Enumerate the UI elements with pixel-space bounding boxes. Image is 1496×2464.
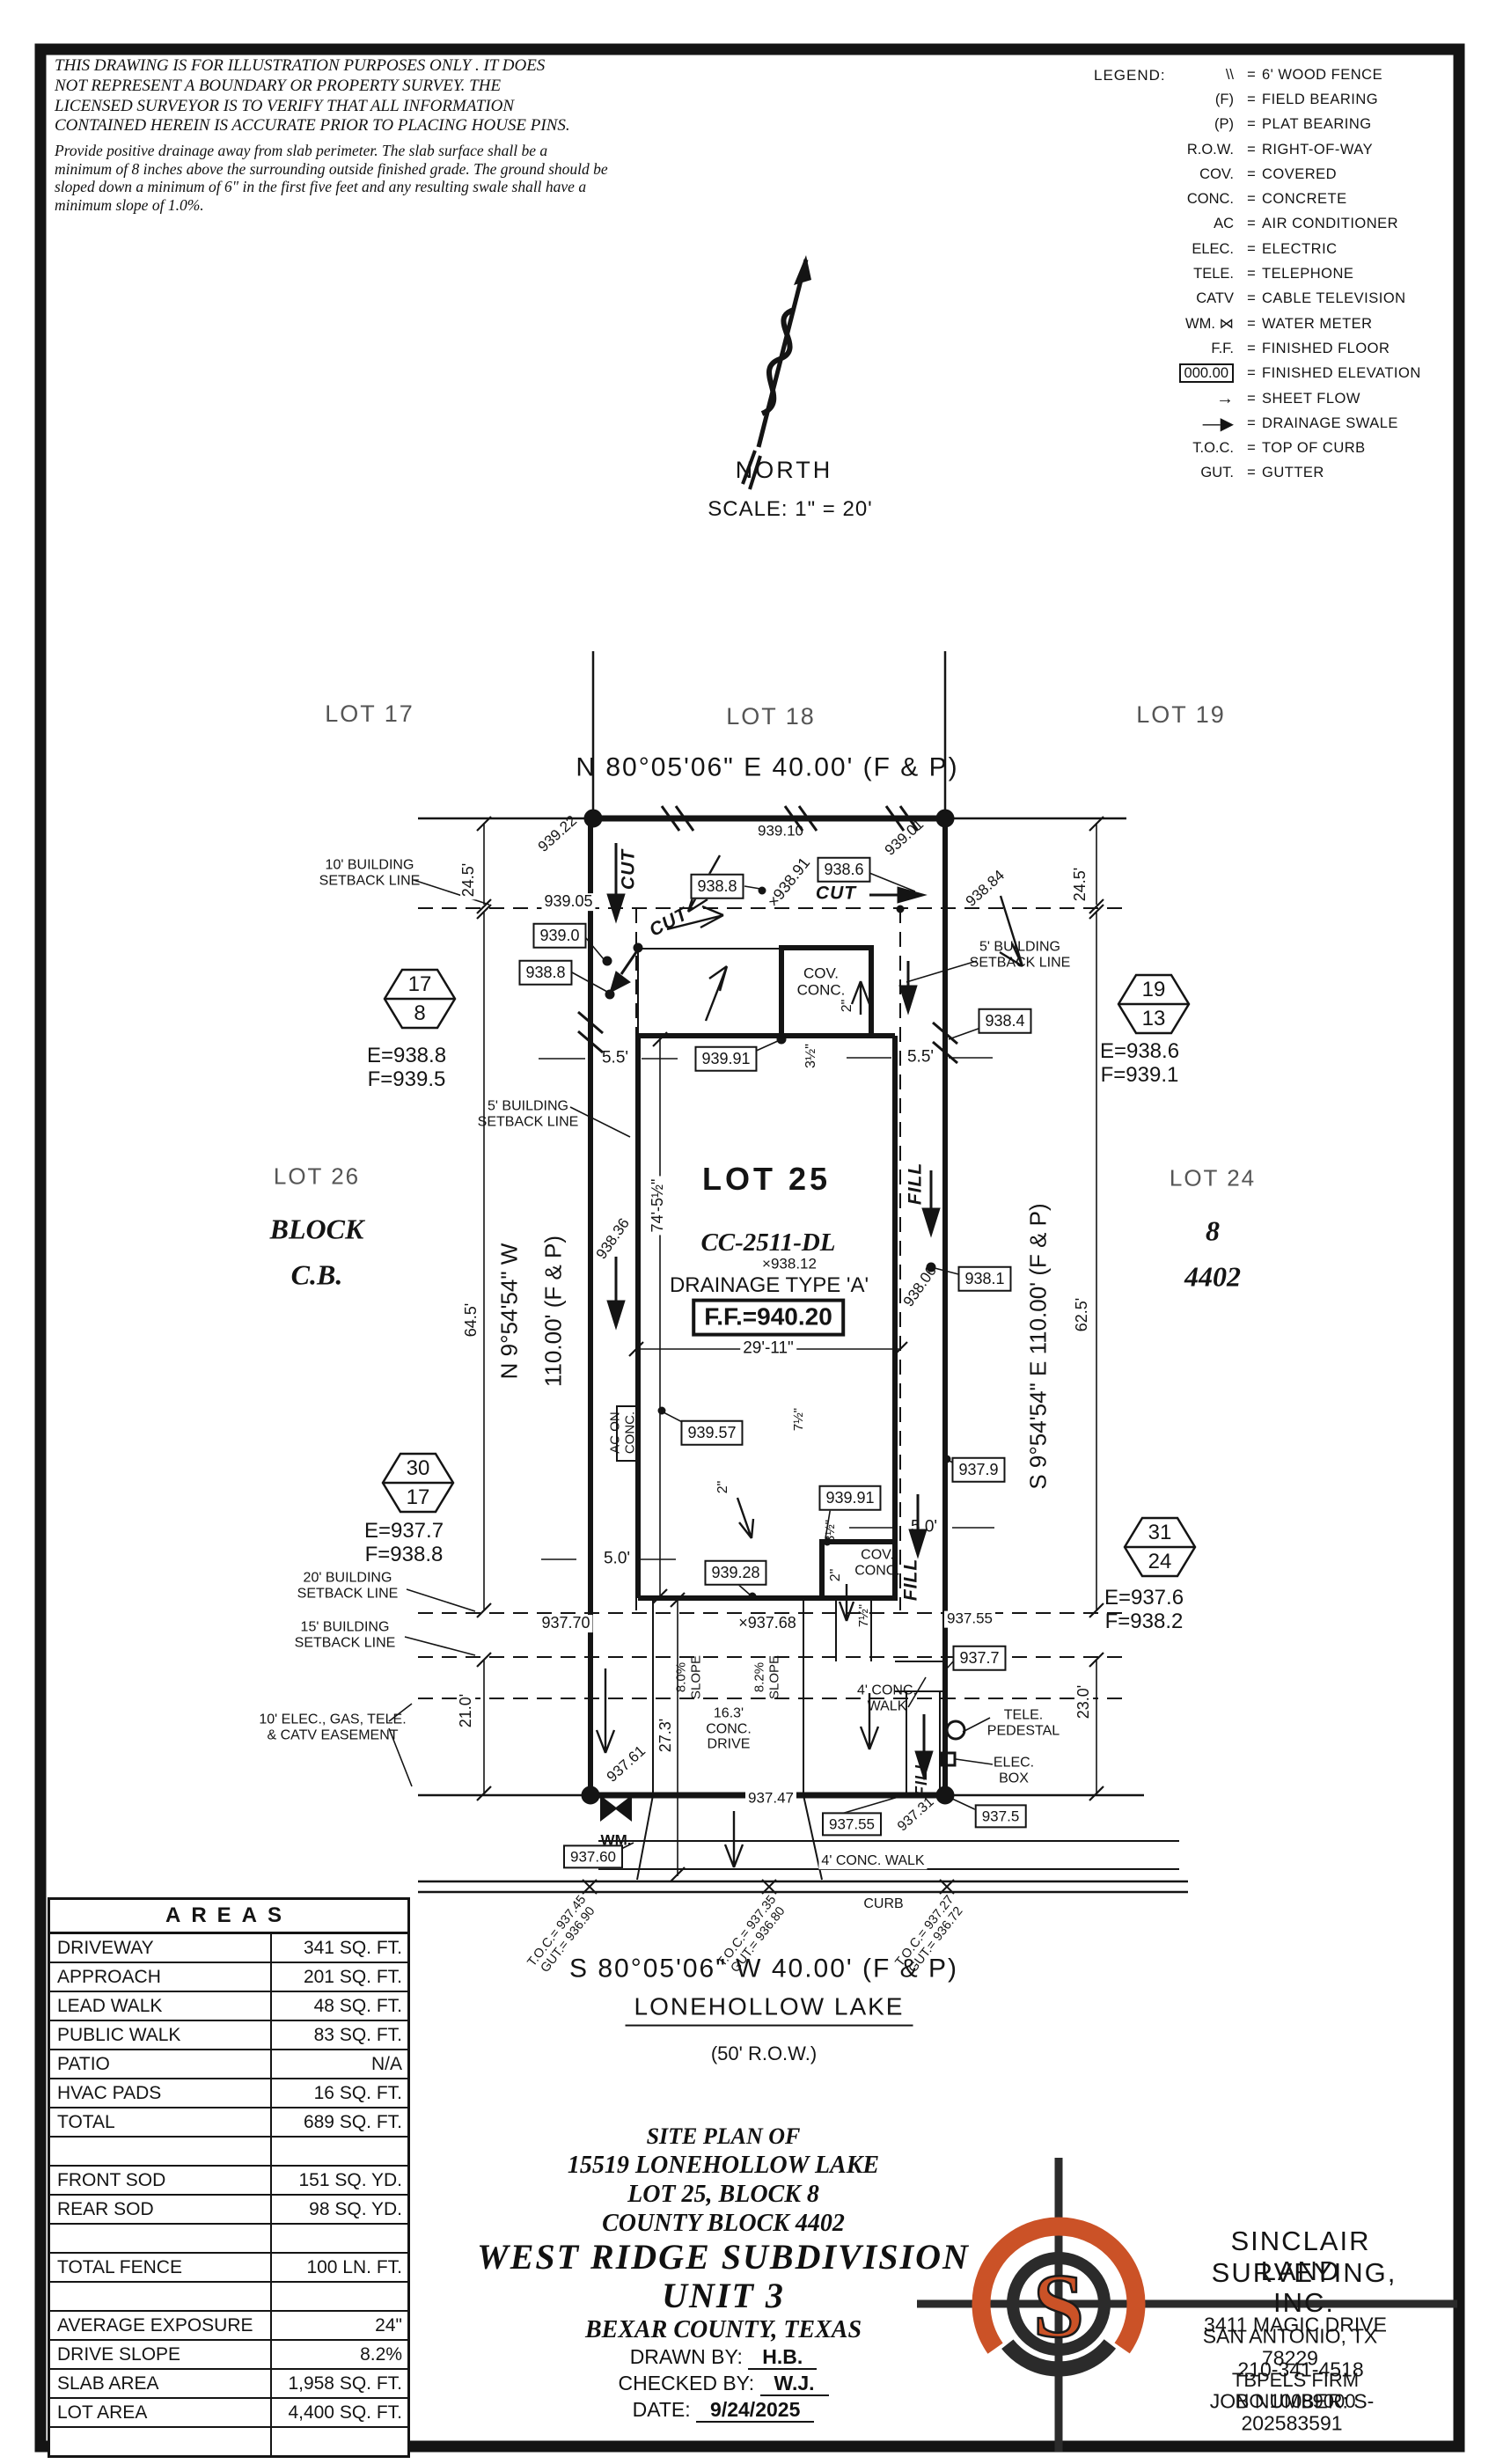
areas-row-label: REAR SOD (50, 2196, 272, 2223)
dim-23-0: 23.0' (1075, 1683, 1093, 1721)
disclaimer-paragraph-2: Provide positive drainage away from slab… (55, 142, 723, 215)
label-pad-elevation: ×938.12 (762, 1257, 817, 1273)
areas-row: FRONT SOD 151 SQ. YD. (50, 2167, 407, 2196)
label-lot-18: LOT 18 (726, 704, 816, 730)
ef-sw-f: F=938.8 (365, 1544, 444, 1566)
label-curb: CURB (863, 1896, 903, 1912)
areas-row (50, 2428, 407, 2455)
legend-equals: = (1241, 116, 1262, 133)
dim-3-5in-a: 3½" (803, 1044, 819, 1068)
legend-equals: = (1241, 415, 1262, 432)
areas-row-value: 8.2% (272, 2341, 407, 2368)
label-lot-25: LOT 25 (702, 1162, 831, 1197)
areas-row: LEAD WALK 48 SQ. FT. (50, 1992, 407, 2021)
legend-symbol: CONC. (1137, 191, 1241, 208)
legend-description: FINISHED FLOOR (1262, 341, 1464, 357)
label-setback-10: 10' BUILDING SETBACK LINE (319, 857, 421, 888)
checked-by-value: W.J. (760, 2372, 829, 2396)
areas-row-value: 16 SQ. FT. (272, 2079, 407, 2107)
elev-939-05: 939.05 (541, 893, 595, 911)
hex-30-top: 30 (407, 1457, 430, 1480)
areas-row-label: PATIO (50, 2050, 272, 2078)
areas-row-value: 151 SQ. YD. (272, 2167, 407, 2194)
label-fill-1: FILL (905, 1162, 925, 1205)
title-line-4: COUNTY BLOCK 4402 (442, 2209, 1005, 2238)
areas-row: HVAC PADS 16 SQ. FT. (50, 2079, 407, 2108)
legend-row: TELE. = TELEPHONE (1137, 261, 1464, 286)
label-walk-side: 4' CONC. WALK (857, 1683, 917, 1713)
drawn-by-line: DRAWN BY: H.B. (442, 2344, 1005, 2371)
hex-17-bottom: 8 (414, 1002, 425, 1025)
hex-31-bottom: 24 (1148, 1551, 1172, 1573)
legend-row: (F) = FIELD BEARING (1137, 87, 1464, 112)
legend-symbol: CATV (1137, 290, 1241, 307)
elev-box-938-8-b: 938.8 (518, 960, 572, 986)
elev-939-10: 939.10 (758, 824, 803, 840)
areas-row: DRIVE SLOPE 8.2% (50, 2341, 407, 2370)
areas-row-label: AVERAGE EXPOSURE (50, 2312, 272, 2339)
areas-row: LOT AREA 4,400 SQ. FT. (50, 2399, 407, 2428)
areas-row-label: FRONT SOD (50, 2167, 272, 2194)
dim-27-3: 27.3' (657, 1716, 675, 1755)
scale-label: SCALE: 1" = 20' (708, 498, 873, 521)
legend-equals: = (1241, 241, 1262, 258)
label-cov-conc-top: COV. CONC. (797, 965, 846, 998)
dim-5-5-left: 5.5' (602, 1050, 628, 1068)
areas-row-label: LOT AREA (50, 2399, 272, 2426)
label-slope-80: 8.0% SLOPE (675, 1655, 704, 1699)
dim-24-5-left: 24.5' (460, 861, 478, 899)
areas-row-label (50, 2138, 272, 2165)
areas-row-value: 689 SQ. FT. (272, 2108, 407, 2136)
legend-equals: = (1241, 440, 1262, 457)
legend-description: SHEET FLOW (1262, 391, 1464, 407)
label-block-cb: C.B. (291, 1259, 343, 1290)
legend: \\ = 6' WOOD FENCE (F) = FIELD BEARING (… (1137, 62, 1464, 486)
areas-row: TOTAL 689 SQ. FT. (50, 2108, 407, 2138)
legend-row: T.O.C. = TOP OF CURB (1137, 436, 1464, 460)
areas-row-label (50, 2428, 272, 2455)
legend-symbol: ELEC. (1137, 241, 1241, 258)
legend-symbol: (F) (1137, 92, 1241, 108)
legend-equals: = (1241, 316, 1262, 333)
areas-row-value: 48 SQ. FT. (272, 1992, 407, 2020)
date-line: DATE: 9/24/2025 (442, 2397, 1005, 2424)
label-block-word: BLOCK (270, 1214, 364, 1244)
dim-64-5: 64.5' (463, 1301, 480, 1339)
elev-box-937-9: 937.9 (951, 1457, 1005, 1483)
legend-symbol: F.F. (1137, 341, 1241, 357)
north-label: NORTH (736, 458, 833, 484)
ef-ne-e: E=938.6 (1100, 1040, 1179, 1063)
dim-5-0-right: 5.0' (911, 1519, 937, 1537)
title-line-7: BEXAR COUNTY, TEXAS (442, 2315, 1005, 2344)
label-cov-conc-bottom: COV. CONC. (854, 1547, 900, 1578)
label-bearing-north: N 80°05'06" E 40.00' (F & P) (576, 753, 958, 782)
areas-row-value: 4,400 SQ. FT. (272, 2399, 407, 2426)
elev-937-70: 937.70 (539, 1615, 592, 1632)
legend-row: 000.00 = FINISHED ELEVATION (1137, 362, 1464, 386)
legend-description: CONCRETE (1262, 191, 1464, 208)
logo-letter: S (1033, 2255, 1084, 2357)
areas-row: TOTAL FENCE 100 LN. FT. (50, 2254, 407, 2283)
areas-row-value (272, 2283, 407, 2310)
legend-equals: = (1241, 166, 1262, 183)
label-walk-public: 4' CONC. WALK (818, 1853, 927, 1869)
legend-equals: = (1241, 290, 1262, 307)
areas-row: SLAB AREA 1,958 SQ. FT. (50, 2370, 407, 2399)
dim-29-11: 29'-11" (740, 1340, 796, 1359)
elev-937-55-line: 937.55 (944, 1611, 995, 1628)
dim-7-5in-b: 7½" (857, 1604, 872, 1627)
legend-row: WM. ⋈ = WATER METER (1137, 312, 1464, 336)
legend-description: TELEPHONE (1262, 266, 1464, 282)
label-setback-15: 15' BUILDING SETBACK LINE (295, 1619, 396, 1650)
finished-floor-elevation: F.F.=940.20 (692, 1299, 845, 1337)
areas-row: APPROACH 201 SQ. FT. (50, 1963, 407, 1992)
legend-equals: = (1241, 92, 1262, 108)
label-bearing-east: S 9°54'54" E 110.00' (F & P) (1026, 1203, 1052, 1489)
dim-24-5-right: 24.5' (1072, 865, 1089, 904)
elev-box-939-0: 939.0 (532, 923, 586, 949)
title-line-1: SITE PLAN OF (442, 2123, 1005, 2151)
legend-equals: = (1241, 266, 1262, 282)
dim-21-0: 21.0' (458, 1691, 475, 1730)
areas-row: DRIVEWAY 341 SQ. FT. (50, 1934, 407, 1963)
checked-by-label: CHECKED BY: (618, 2372, 754, 2394)
legend-description: AIR CONDITIONER (1262, 216, 1464, 232)
label-cut-3: CUT (816, 883, 856, 903)
label-bearing-west-2: 110.00' (F & P) (541, 1236, 567, 1387)
legend-row: COV. = COVERED (1137, 162, 1464, 187)
areas-row-label: APPROACH (50, 1963, 272, 1991)
areas-row-label: TOTAL (50, 2108, 272, 2136)
areas-row-value (272, 2428, 407, 2455)
label-lot-19: LOT 19 (1136, 702, 1226, 729)
disclaimer-paragraph-1: THIS DRAWING IS FOR ILLUSTRATION PURPOSE… (55, 56, 723, 136)
label-lot-17: LOT 17 (325, 701, 414, 728)
legend-symbol: WM. ⋈ (1137, 315, 1241, 333)
label-plan-code: CC-2511-DL (700, 1229, 835, 1258)
dim-62-5: 62.5' (1074, 1295, 1091, 1334)
surveyor-name-2: SURVEYING, INC. (1208, 2258, 1400, 2318)
areas-row-value: 1,958 SQ. FT. (272, 2370, 407, 2397)
label-drive: 16.3' CONC. DRIVE (706, 1706, 752, 1753)
legend-symbol: \\ (1137, 67, 1241, 84)
checked-by-line: CHECKED BY: W.J. (442, 2371, 1005, 2397)
areas-row-label (50, 2225, 272, 2252)
elev-box-938-4: 938.4 (978, 1008, 1031, 1034)
hex-19-top: 19 (1142, 979, 1166, 1001)
areas-rows: DRIVEWAY 341 SQ. FT. APPROACH 201 SQ. FT… (50, 1934, 407, 2455)
areas-row-label: DRIVE SLOPE (50, 2341, 272, 2368)
elev-box-938-8-a: 938.8 (690, 874, 744, 899)
dim-2in-c: 2" (828, 1569, 844, 1582)
site-plan-sheet: S THIS DRAWING IS FOR ILLUSTRATION PURPO… (0, 0, 1496, 2464)
legend-equals: = (1241, 191, 1262, 208)
legend-symbol: → (1137, 389, 1241, 409)
areas-row-value: 83 SQ. FT. (272, 2021, 407, 2049)
ef-nw-f: F=939.5 (368, 1068, 446, 1091)
tele-pedestal-icon (947, 1721, 964, 1739)
legend-equals: = (1241, 391, 1262, 407)
elev-box-939-91-a: 939.91 (694, 1046, 757, 1072)
areas-row (50, 2283, 407, 2312)
legend-row: F.F. = FINISHED FLOOR (1137, 336, 1464, 361)
drawn-by-label: DRAWN BY: (630, 2345, 743, 2368)
hex-17-top: 17 (408, 973, 432, 996)
elev-box-937-60: 937.60 (563, 1844, 623, 1868)
hex-19-bottom: 13 (1142, 1008, 1166, 1030)
areas-row-value: 24" (272, 2312, 407, 2339)
date-value: 9/24/2025 (696, 2398, 814, 2423)
label-bearing-west-1: N 9°54'54" W (497, 1243, 523, 1380)
legend-row: CONC. = CONCRETE (1137, 187, 1464, 211)
elev-box-938-1: 938.1 (957, 1266, 1011, 1292)
ef-nw-e: E=938.8 (367, 1045, 446, 1067)
areas-row-label: LEAD WALK (50, 1992, 272, 2020)
label-drainage-type: DRAINAGE TYPE 'A' (670, 1274, 869, 1297)
legend-equals: = (1241, 465, 1262, 481)
legend-row: GUT. = GUTTER (1137, 461, 1464, 486)
label-lot-26: LOT 26 (274, 1164, 360, 1190)
north-arrow-icon (743, 255, 811, 489)
legend-equals: = (1241, 365, 1262, 382)
ef-se-e: E=937.6 (1104, 1587, 1184, 1610)
label-lot-24: LOT 24 (1170, 1166, 1256, 1192)
elev-937-47: 937.47 (745, 1791, 796, 1808)
areas-row-label: DRIVEWAY (50, 1934, 272, 1962)
legend-symbol: GUT. (1137, 465, 1241, 481)
legend-symbol: COV. (1137, 166, 1241, 183)
areas-row: PATIO N/A (50, 2050, 407, 2079)
dim-3-5in-b: 3½" (824, 1520, 839, 1543)
legend-description: PLAT BEARING (1262, 116, 1464, 133)
elev-box-939-28: 939.28 (704, 1560, 766, 1586)
dim-74-5: 74'-5½" (649, 1177, 667, 1236)
legend-symbol: —▶ (1137, 413, 1241, 435)
date-label: DATE: (633, 2398, 691, 2421)
street-name: LONEHOLLOW LAKE (626, 1994, 913, 2027)
label-elec-box: ELEC. BOX (994, 1755, 1034, 1786)
areas-row-value: 201 SQ. FT. (272, 1963, 407, 1991)
legend-row: → = SHEET FLOW (1137, 386, 1464, 411)
legend-symbol: 000.00 (1137, 365, 1241, 382)
legend-row: ELEC. = ELECTRIC (1137, 237, 1464, 261)
label-slope-82: 8.2% SLOPE (753, 1655, 782, 1699)
label-county-block-4402: 4402 (1184, 1261, 1241, 1292)
dim-2in-b: 2" (715, 1481, 731, 1494)
legend-row: AC = AIR CONDITIONER (1137, 212, 1464, 237)
title-line-3: LOT 25, BLOCK 8 (442, 2180, 1005, 2209)
elev-box-939-57: 939.57 (680, 1420, 743, 1446)
label-setback-5-right: 5' BUILDING SETBACK LINE (970, 939, 1071, 970)
areas-row-label: PUBLIC WALK (50, 2021, 272, 2049)
elev-box-939-91-b: 939.91 (818, 1485, 881, 1511)
legend-symbol: R.O.W. (1137, 142, 1241, 158)
legend-description: FIELD BEARING (1262, 92, 1464, 108)
legend-symbol: T.O.C. (1137, 440, 1241, 457)
label-fill-2: FILL (900, 1558, 920, 1601)
label-setback-5-left: 5' BUILDING SETBACK LINE (478, 1098, 579, 1129)
legend-row: (P) = PLAT BEARING (1137, 113, 1464, 137)
legend-description: RIGHT-OF-WAY (1262, 142, 1464, 158)
areas-title: AREAS (50, 1900, 407, 1934)
legend-description: FINISHED ELEVATION (1262, 365, 1464, 382)
areas-row-value (272, 2225, 407, 2252)
ef-sw-e: E=937.7 (364, 1520, 444, 1543)
legend-description: DRAINAGE SWALE (1262, 415, 1464, 432)
areas-table: AREAS DRIVEWAY 341 SQ. FT. APPROACH 201 … (48, 1897, 410, 2458)
dim-5-5-right: 5.5' (907, 1049, 934, 1067)
legend-description: COVERED (1262, 166, 1464, 183)
areas-row (50, 2225, 407, 2254)
label-cut-1: CUT (618, 849, 638, 890)
drawn-by-value: H.B. (748, 2345, 817, 2370)
areas-row-value: 341 SQ. FT. (272, 1934, 407, 1962)
legend-equals: = (1241, 216, 1262, 232)
areas-row-value (272, 2138, 407, 2165)
title-line-5: WEST RIDGE SUBDIVISION (442, 2238, 1005, 2277)
dim-5-0-left: 5.0' (604, 1551, 630, 1569)
label-tele-pedestal: TELE. PEDESTAL (987, 1707, 1060, 1738)
legend-description: GUTTER (1262, 465, 1464, 481)
legend-row: —▶ = DRAINAGE SWALE (1137, 411, 1464, 436)
dim-7-5in-a: 7½" (792, 1408, 807, 1431)
legend-description: ELECTRIC (1262, 241, 1464, 258)
water-meter-icon (601, 1797, 631, 1820)
areas-row (50, 2138, 407, 2167)
legend-equals: = (1241, 341, 1262, 357)
legend-row: CATV = CABLE TELEVISION (1137, 287, 1464, 312)
areas-row-label: HVAC PADS (50, 2079, 272, 2107)
label-block-8: 8 (1206, 1215, 1220, 1246)
ef-se-f: F=938.2 (1105, 1610, 1184, 1633)
label-easement: 10' ELEC., GAS, TELE. & CATV EASEMENT (259, 1712, 406, 1742)
legend-row: R.O.W. = RIGHT-OF-WAY (1137, 137, 1464, 162)
label-fill-3: FILL (913, 1759, 931, 1796)
elev-937-68: ×937.68 (736, 1615, 799, 1632)
legend-description: TOP OF CURB (1262, 440, 1464, 457)
surveyor-job-number: JOB NUMBER: S-202583591 (1190, 2391, 1394, 2436)
areas-row: PUBLIC WALK 83 SQ. FT. (50, 2021, 407, 2050)
title-line-2: 15519 LONEHOLLOW LAKE (442, 2151, 1005, 2180)
hex-30-bottom: 17 (407, 1486, 430, 1509)
elev-box-937-5: 937.5 (975, 1804, 1027, 1828)
street-row: (50' R.O.W.) (711, 2043, 817, 2064)
label-setback-20: 20' BUILDING SETBACK LINE (297, 1570, 399, 1601)
legend-description: WATER METER (1262, 316, 1464, 333)
title-block: SITE PLAN OF 15519 LONEHOLLOW LAKE LOT 2… (442, 2123, 1005, 2424)
areas-row-label: SLAB AREA (50, 2370, 272, 2397)
legend-equals: = (1241, 67, 1262, 84)
disclaimer-note: THIS DRAWING IS FOR ILLUSTRATION PURPOSE… (55, 56, 723, 215)
areas-row-label: TOTAL FENCE (50, 2254, 272, 2281)
areas-row-value: N/A (272, 2050, 407, 2078)
legend-row: \\ = 6' WOOD FENCE (1137, 62, 1464, 87)
legend-symbol: TELE. (1137, 266, 1241, 282)
areas-row-label (50, 2283, 272, 2310)
areas-row-value: 100 LN. FT. (272, 2254, 407, 2281)
legend-symbol: AC (1137, 216, 1241, 232)
legend-equals: = (1241, 142, 1262, 158)
legend-description: CABLE TELEVISION (1262, 290, 1464, 307)
elev-box-937-55: 937.55 (822, 1812, 882, 1836)
label-ac-pad: AC ON CONC. (609, 1412, 638, 1454)
title-line-6: UNIT 3 (442, 2277, 1005, 2315)
hex-31-top: 31 (1148, 1522, 1172, 1544)
elev-box-937-7: 937.7 (952, 1646, 1006, 1671)
legend-description: 6' WOOD FENCE (1262, 67, 1464, 84)
ef-ne-f: F=939.1 (1101, 1064, 1179, 1087)
areas-row-value: 98 SQ. YD. (272, 2196, 407, 2223)
areas-row: REAR SOD 98 SQ. YD. (50, 2196, 407, 2225)
legend-symbol: (P) (1137, 116, 1241, 133)
elev-box-938-6: 938.6 (817, 857, 870, 883)
areas-row: AVERAGE EXPOSURE 24" (50, 2312, 407, 2341)
dim-2in-a: 2" (840, 1000, 855, 1013)
